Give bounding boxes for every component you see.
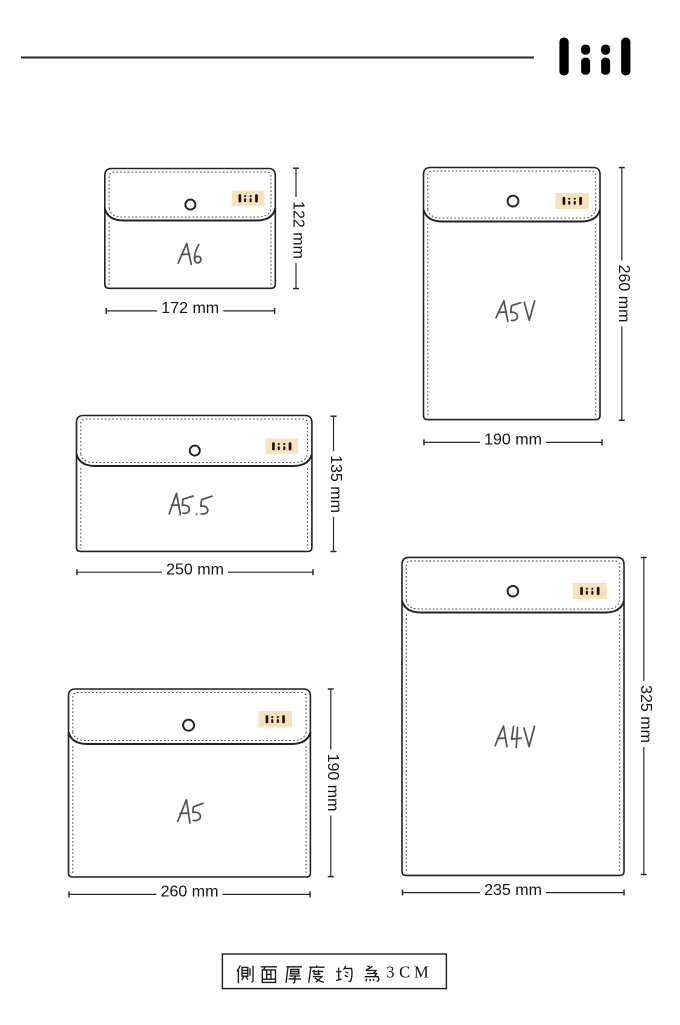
svg-text:190 mm: 190 mm	[484, 432, 542, 449]
svg-text:260 mm: 260 mm	[615, 265, 632, 323]
svg-text:M: M	[414, 963, 429, 982]
svg-text:250 mm: 250 mm	[166, 561, 224, 578]
svg-text:172 mm: 172 mm	[161, 300, 219, 317]
svg-text:190 mm: 190 mm	[324, 754, 341, 812]
svg-text:122 mm: 122 mm	[289, 201, 306, 259]
svg-text:C: C	[399, 963, 410, 982]
svg-text:260 mm: 260 mm	[161, 884, 219, 901]
svg-text:235 mm: 235 mm	[484, 882, 542, 899]
svg-text:325 mm: 325 mm	[637, 685, 654, 743]
svg-text:135 mm: 135 mm	[327, 455, 344, 513]
svg-text:3: 3	[386, 963, 394, 982]
